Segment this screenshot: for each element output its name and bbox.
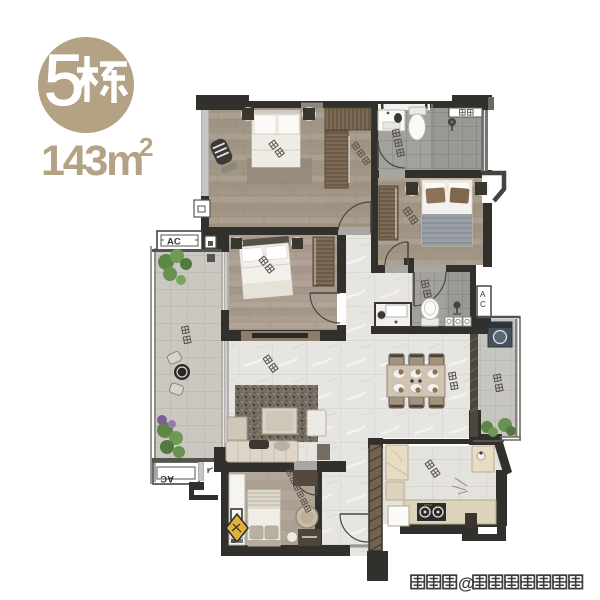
svg-text:5: 5 bbox=[44, 41, 84, 121]
svg-text:2: 2 bbox=[139, 132, 153, 162]
svg-text:143m: 143m bbox=[41, 137, 142, 185]
svg-text:@: @ bbox=[458, 574, 475, 593]
svg-text:A: A bbox=[480, 290, 486, 299]
svg-text:C: C bbox=[480, 300, 486, 309]
svg-text:AC: AC bbox=[167, 237, 181, 248]
svg-text:AC: AC bbox=[160, 473, 174, 484]
